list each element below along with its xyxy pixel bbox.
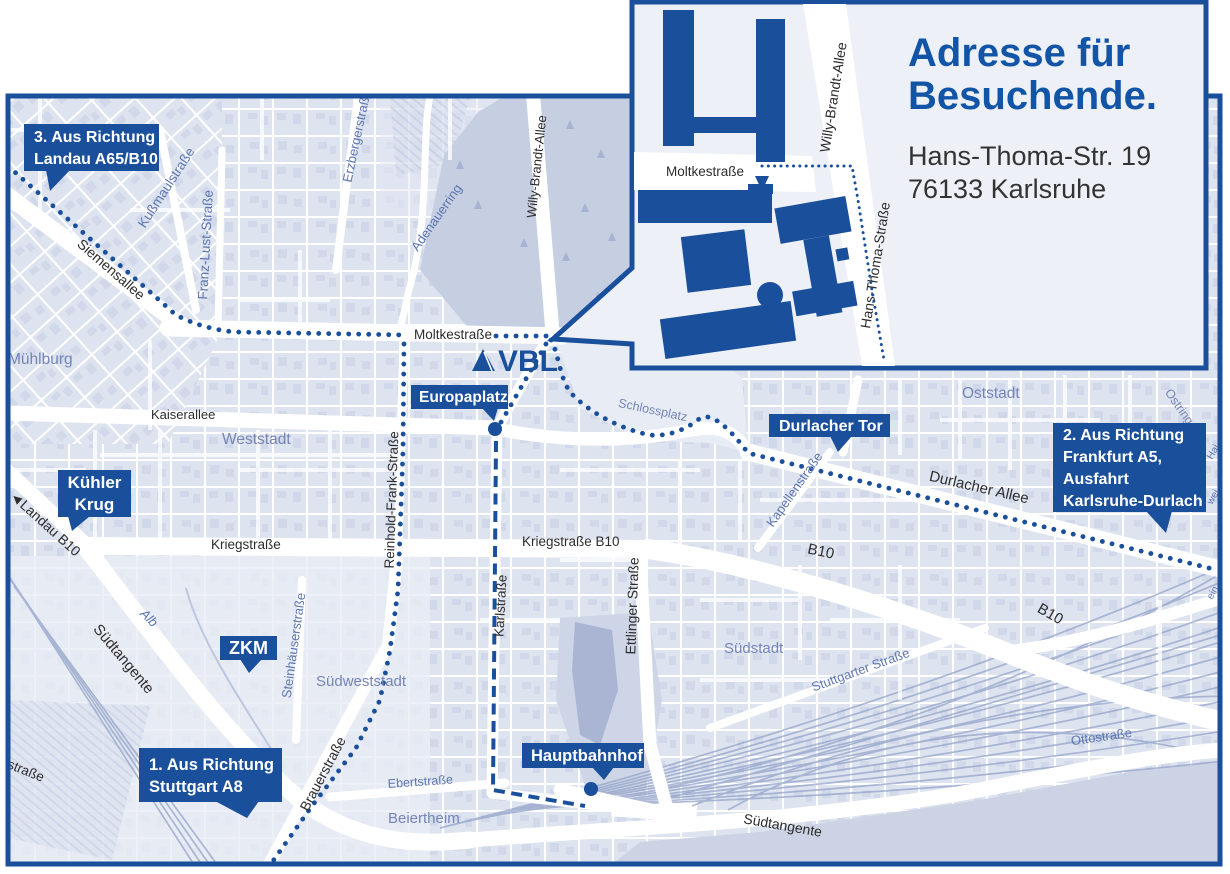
svg-text:VBL: VBL — [498, 345, 558, 378]
svg-text:1. Aus Richtung: 1. Aus Richtung — [149, 756, 274, 774]
svg-text:Südweststadt: Südweststadt — [316, 673, 407, 690]
svg-text:Ausfahrt: Ausfahrt — [1063, 471, 1129, 488]
svg-text:Krug: Krug — [75, 495, 115, 514]
svg-text:Landau A65/B10: Landau A65/B10 — [34, 151, 158, 168]
svg-text:Ettlinger Straße: Ettlinger Straße — [622, 557, 641, 655]
svg-text:Karlsruhe-Durlach: Karlsruhe-Durlach — [1063, 493, 1203, 510]
svg-text:Mühlburg: Mühlburg — [8, 351, 73, 368]
svg-text:Kaiserallee: Kaiserallee — [151, 407, 215, 422]
svg-text:Adresse für: Adresse für — [908, 31, 1130, 75]
svg-text:ZKM: ZKM — [229, 638, 268, 658]
svg-text:Durlacher Tor: Durlacher Tor — [779, 418, 883, 435]
svg-text:Frankfurt A5,: Frankfurt A5, — [1063, 449, 1162, 466]
svg-text:Hauptbahnhof: Hauptbahnhof — [531, 747, 643, 765]
svg-text:Moltkestraße: Moltkestraße — [666, 164, 744, 179]
svg-text:Europaplatz: Europaplatz — [419, 389, 508, 406]
svg-text:Stuttgart A8: Stuttgart A8 — [149, 778, 243, 796]
svg-text:Besuchende.: Besuchende. — [908, 74, 1157, 118]
svg-text:2. Aus Richtung: 2. Aus Richtung — [1063, 427, 1184, 444]
svg-text:Hans-Thoma-Str. 19: Hans-Thoma-Str. 19 — [908, 141, 1151, 171]
svg-text:Kriegstraße: Kriegstraße — [211, 537, 281, 552]
svg-text:Weststadt: Weststadt — [222, 431, 291, 448]
svg-text:Beiertheim: Beiertheim — [388, 810, 460, 827]
svg-text:Südstadt: Südstadt — [724, 640, 784, 657]
svg-text:Moltkestraße: Moltkestraße — [414, 327, 492, 342]
svg-text:76133 Karlsruhe: 76133 Karlsruhe — [908, 174, 1106, 204]
svg-text:Oststadt: Oststadt — [962, 385, 1020, 402]
svg-text:3. Aus Richtung: 3. Aus Richtung — [34, 129, 155, 146]
svg-text:Kriegstraße B10: Kriegstraße B10 — [522, 534, 620, 549]
svg-text:Kühler: Kühler — [68, 473, 122, 492]
